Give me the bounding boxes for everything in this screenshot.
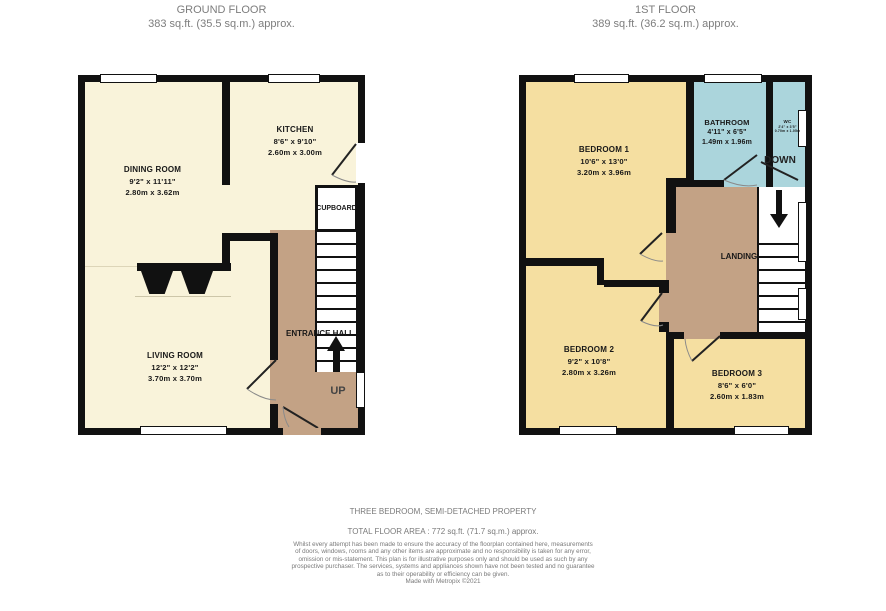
- cupboard-label: CUPBOARD: [316, 205, 356, 212]
- chimney-breast-left: [141, 271, 173, 294]
- bedroom1-door-leaf: [640, 233, 662, 254]
- kitchen-door-arc: [332, 175, 356, 182]
- kitchen-label: KITCHEN 8'6" x 9'10" 2.60m x 3.00m: [235, 124, 355, 159]
- disclaimer-line: prospective purchaser. The services, sys…: [0, 563, 886, 570]
- wall-bed1-bed2: [526, 258, 604, 266]
- bedroom3-door-leaf: [692, 336, 720, 361]
- bedroom1-door-arc: [640, 254, 663, 261]
- kitchen-window: [268, 74, 320, 83]
- disclaimer-line: Whilst every attempt has been made to en…: [0, 541, 886, 548]
- wall-bed2-upper: [604, 280, 661, 287]
- up-arrow-icon: [333, 350, 340, 372]
- total-floor-area: TOTAL FLOOR AREA : 772 sq.ft. (71.7 sq.m…: [0, 527, 886, 536]
- first-floor-area: 389 sq.ft. (36.2 sq.m.) approx.: [519, 17, 812, 31]
- bedroom1-label: BEDROOM 1 10'6" x 13'0" 3.20m x 3.96m: [534, 144, 674, 179]
- wall-bed2-door-stub-bottom: [659, 322, 669, 332]
- up-arrow-head-icon: [327, 336, 345, 351]
- bedroom2-door-opening: [659, 287, 669, 327]
- disclaimer-line: omission or mis-statement. This plan is …: [0, 556, 886, 563]
- wall-bathroom-wc: [766, 82, 773, 187]
- property-type: THREE BEDROOM, SEMI-DETACHED PROPERTY: [0, 507, 886, 516]
- dining-room-label: DINING ROOM 9'2" x 11'11" 2.80m x 3.62m: [85, 164, 220, 199]
- room-boundary-line: [85, 266, 137, 267]
- wc-label: WC 2'4" x 3'5" 0.70m x 1.05m: [770, 120, 805, 134]
- ground-floor-plan: CUPBOARD DINING ROOM 9'2" x 11'11" 2.80m…: [78, 75, 365, 435]
- entrance-hall-label: ENTRANCE HALL: [260, 329, 380, 338]
- disclaimer-line: of doors, windows, rooms and any other i…: [0, 548, 886, 555]
- chimney-breast-right: [181, 271, 213, 294]
- down-arrow-head-icon: [770, 214, 788, 228]
- wall-living-hall-lower: [270, 404, 278, 428]
- hall-window: [356, 372, 365, 408]
- bedroom2-window: [559, 426, 617, 435]
- wall-living-hall-upper: [270, 233, 278, 360]
- wall-bed1-landing: [666, 178, 676, 233]
- bathroom-window: [704, 74, 762, 83]
- bedroom1-window: [574, 74, 629, 83]
- bathroom-label: BATHROOM 4'11" x 6'5" 1.49m x 1.96m: [687, 118, 767, 148]
- up-label: UP: [320, 385, 356, 397]
- disclaimer: Whilst every attempt has been made to en…: [0, 541, 886, 585]
- bedroom3-door-opening: [684, 332, 720, 339]
- landing-label: LANDING: [691, 252, 787, 261]
- front-door-opening: [283, 421, 321, 435]
- wall-dining-kitchen: [222, 82, 230, 185]
- bedroom2-label: BEDROOM 2 9'2" x 10'8" 2.80m x 3.26m: [526, 344, 652, 379]
- down-arrow-icon: [776, 190, 782, 216]
- landing-side-window: [798, 288, 807, 320]
- kitchen-side-door-opening: [356, 143, 366, 183]
- stair-side-window: [798, 202, 807, 262]
- first-floor-plan: BEDROOM 1 10'6" x 13'0" 3.20m x 3.96m BA…: [519, 75, 812, 435]
- wall-dining-living: [137, 263, 231, 271]
- bedroom3-label: BEDROOM 3 8'6" x 6'0" 2.60m x 1.83m: [672, 368, 802, 403]
- disclaimer-line: as to their operability or efficiency ca…: [0, 571, 886, 578]
- living-room-label: LIVING ROOM 12'2" x 12'2" 3.70m x 3.70m: [105, 350, 245, 385]
- hearth-line: [135, 296, 231, 297]
- ground-floor-header: GROUND FLOOR 383 sq.ft. (35.5 sq.m.) app…: [78, 3, 365, 31]
- ground-floor-title: GROUND FLOOR: [78, 3, 365, 17]
- dining-window: [100, 74, 157, 83]
- bedroom3-door-arc: [685, 339, 692, 361]
- metropix-credit: Made with Metropix ©2021: [0, 578, 886, 585]
- cupboard-box: CUPBOARD: [315, 185, 358, 232]
- ground-floor-area: 383 sq.ft. (35.5 sq.m.) approx.: [78, 17, 365, 31]
- bedroom3-window: [734, 426, 789, 435]
- down-label: DOWN: [750, 155, 810, 166]
- wall-bed1-bed2-step: [597, 258, 604, 285]
- living-room-window: [140, 426, 227, 435]
- first-floor-title: 1ST FLOOR: [519, 3, 812, 17]
- first-floor-header: 1ST FLOOR 389 sq.ft. (36.2 sq.m.) approx…: [519, 3, 812, 31]
- wall-landing-bed3-right: [720, 332, 805, 339]
- wall-bed2-door-stub-top: [659, 280, 669, 293]
